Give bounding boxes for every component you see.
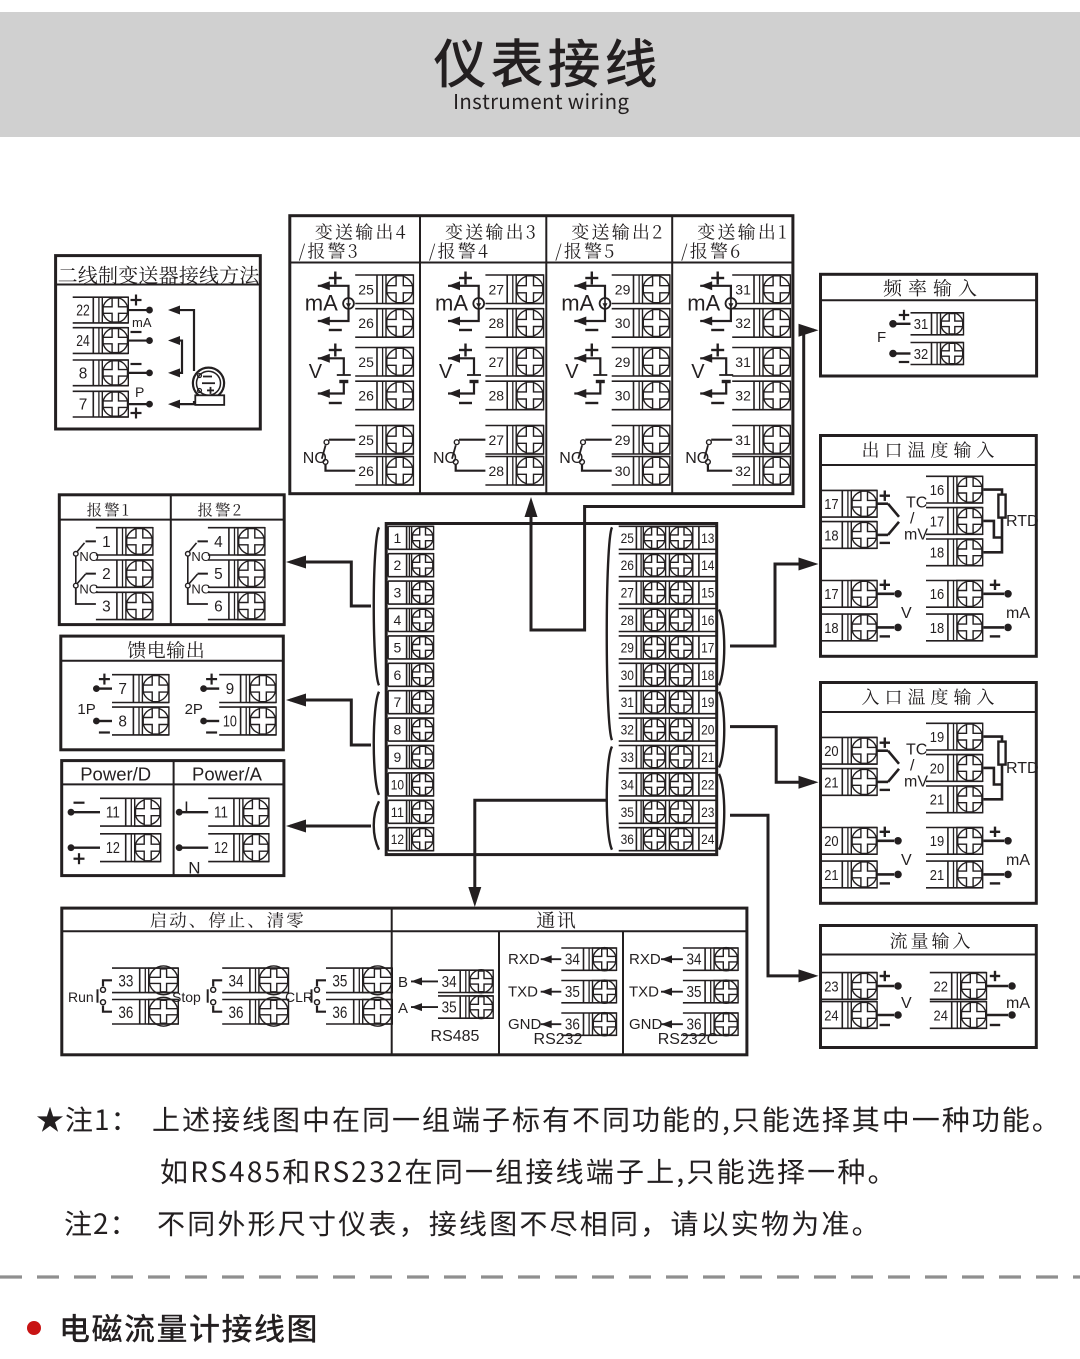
svg-text:33: 33 [118, 971, 133, 990]
svg-text:34: 34 [565, 952, 580, 969]
svg-text:1: 1 [102, 534, 111, 551]
svg-text:V: V [691, 361, 705, 383]
svg-text:24: 24 [934, 1008, 948, 1024]
svg-text:34: 34 [621, 776, 634, 792]
svg-text:N: N [188, 859, 200, 878]
svg-text:mA: mA [687, 291, 720, 316]
svg-text:mV: mV [904, 774, 928, 791]
svg-text:2P: 2P [185, 701, 203, 718]
svg-text:23: 23 [701, 804, 714, 820]
svg-text:32: 32 [735, 463, 751, 479]
svg-text:25: 25 [621, 530, 634, 546]
svg-text:30: 30 [621, 667, 634, 683]
svg-text:8: 8 [394, 722, 402, 738]
svg-text:5: 5 [394, 639, 402, 655]
svg-text:26: 26 [621, 557, 634, 573]
svg-text:16: 16 [701, 612, 714, 628]
svg-text:7: 7 [118, 681, 127, 698]
svg-text:V: V [901, 852, 912, 869]
svg-text:RTD: RTD [1006, 760, 1039, 777]
svg-text:Stop: Stop [172, 989, 201, 1005]
svg-text:TXD: TXD [508, 984, 538, 1001]
svg-text:Power/D: Power/D [80, 764, 151, 785]
svg-text:mA: mA [1006, 605, 1030, 622]
svg-text:25: 25 [358, 354, 374, 370]
svg-text:7: 7 [79, 397, 88, 414]
svg-text:1: 1 [394, 530, 402, 546]
svg-text:8: 8 [79, 365, 88, 382]
svg-text:28: 28 [489, 387, 505, 403]
svg-text:17: 17 [824, 497, 838, 513]
svg-text:27: 27 [489, 281, 505, 297]
svg-text:35: 35 [621, 804, 634, 820]
svg-text:6: 6 [214, 598, 223, 615]
svg-text:21: 21 [701, 749, 714, 765]
svg-text:2: 2 [102, 566, 111, 583]
svg-text:RS485: RS485 [431, 1028, 480, 1045]
svg-text:26: 26 [358, 387, 374, 403]
svg-text:26: 26 [358, 463, 374, 479]
svg-text:22: 22 [76, 303, 90, 320]
svg-text:mA: mA [305, 291, 338, 316]
svg-text:NO: NO [191, 549, 211, 564]
svg-text:32: 32 [735, 387, 751, 403]
svg-text:TXD: TXD [629, 984, 659, 1001]
svg-text:36: 36 [229, 1003, 244, 1022]
svg-text:NO: NO [433, 450, 457, 467]
svg-text:36: 36 [332, 1003, 347, 1022]
svg-text:V: V [309, 361, 323, 383]
svg-text:30: 30 [615, 315, 631, 331]
svg-text:34: 34 [229, 971, 244, 990]
svg-text:27: 27 [489, 432, 505, 448]
svg-text:31: 31 [914, 317, 928, 333]
svg-text:34: 34 [687, 952, 702, 969]
svg-text:26: 26 [358, 315, 374, 331]
svg-text:9: 9 [226, 681, 235, 698]
svg-text:8: 8 [118, 714, 127, 731]
svg-text:29: 29 [621, 639, 634, 655]
svg-text:21: 21 [930, 793, 944, 809]
svg-text:29: 29 [615, 354, 631, 370]
svg-text:23: 23 [824, 979, 838, 995]
svg-text:12: 12 [391, 831, 404, 847]
svg-text:1P: 1P [77, 701, 95, 718]
svg-text:22: 22 [934, 979, 948, 995]
svg-text:3: 3 [102, 598, 111, 615]
svg-text:12: 12 [214, 840, 228, 857]
svg-text:F: F [877, 329, 886, 346]
svg-text:11: 11 [214, 805, 228, 822]
svg-text:32: 32 [621, 722, 634, 738]
svg-text:24: 24 [701, 831, 714, 847]
svg-text:19: 19 [930, 834, 944, 850]
svg-text:11: 11 [106, 805, 120, 822]
svg-text:17: 17 [930, 514, 944, 530]
svg-text:17: 17 [824, 587, 838, 603]
svg-text:36: 36 [621, 831, 634, 847]
svg-text:mA: mA [561, 291, 594, 316]
svg-text:18: 18 [701, 667, 714, 683]
svg-text:RXD: RXD [629, 951, 661, 968]
svg-text:RS232: RS232 [534, 1031, 583, 1048]
svg-text:35: 35 [332, 971, 347, 990]
svg-text:10: 10 [223, 714, 237, 731]
svg-text:20: 20 [701, 722, 714, 738]
svg-text:18: 18 [824, 528, 838, 544]
svg-text:31: 31 [621, 694, 634, 710]
svg-text:24: 24 [824, 1008, 838, 1024]
svg-text:33: 33 [621, 749, 634, 765]
svg-text:A: A [398, 1000, 408, 1017]
svg-text:NO: NO [559, 450, 583, 467]
svg-text:31: 31 [735, 354, 751, 370]
svg-text:35: 35 [442, 1000, 457, 1017]
svg-text:32: 32 [914, 347, 928, 363]
svg-text:31: 31 [735, 281, 751, 297]
svg-text:31: 31 [735, 432, 751, 448]
svg-text:16: 16 [930, 587, 944, 603]
svg-text:28: 28 [489, 315, 505, 331]
svg-text:7: 7 [394, 694, 402, 710]
svg-text:20: 20 [930, 761, 944, 777]
svg-text:17: 17 [701, 639, 714, 655]
svg-text:4: 4 [214, 534, 223, 551]
svg-text:19: 19 [930, 730, 944, 746]
svg-text:24: 24 [76, 333, 90, 350]
svg-text:13: 13 [701, 530, 714, 546]
svg-text:29: 29 [615, 281, 631, 297]
svg-text:NC: NC [191, 582, 210, 597]
svg-text:15: 15 [701, 585, 714, 601]
svg-text:V: V [901, 995, 912, 1012]
svg-text:21: 21 [824, 775, 838, 791]
svg-text:21: 21 [930, 868, 944, 884]
svg-text:V: V [565, 361, 579, 383]
svg-text:32: 32 [735, 315, 751, 331]
svg-text:V: V [901, 605, 912, 622]
svg-text:14: 14 [701, 557, 714, 573]
svg-text:35: 35 [565, 984, 580, 1001]
svg-text:NO: NO [79, 549, 99, 564]
svg-text:28: 28 [621, 612, 634, 628]
svg-text:RS232C: RS232C [658, 1031, 718, 1048]
svg-text:29: 29 [615, 432, 631, 448]
svg-text:9: 9 [394, 749, 402, 765]
svg-text:Run: Run [68, 989, 94, 1005]
svg-text:34: 34 [442, 974, 457, 991]
svg-text:20: 20 [824, 834, 838, 850]
svg-text:Power/A: Power/A [192, 764, 263, 785]
svg-text:L: L [184, 798, 193, 817]
svg-text:20: 20 [824, 744, 838, 760]
svg-text:/: / [910, 511, 915, 528]
svg-text:TC: TC [906, 495, 927, 512]
svg-text:6: 6 [394, 667, 402, 683]
svg-text:18: 18 [824, 621, 838, 637]
svg-text:NO: NO [685, 450, 709, 467]
svg-text:mA: mA [435, 291, 468, 316]
svg-text:mA: mA [1006, 995, 1030, 1012]
svg-text:2: 2 [394, 557, 402, 573]
svg-text:22: 22 [701, 776, 714, 792]
svg-text:12: 12 [106, 840, 120, 857]
svg-text:27: 27 [489, 354, 505, 370]
svg-text:3: 3 [394, 585, 402, 601]
svg-text:RXD: RXD [508, 951, 540, 968]
svg-text:NC: NC [79, 582, 98, 597]
svg-text:10: 10 [391, 776, 404, 792]
svg-text:5: 5 [214, 566, 223, 583]
svg-text:30: 30 [615, 387, 631, 403]
svg-text:B: B [398, 974, 408, 991]
svg-text:V: V [439, 361, 453, 383]
svg-text:NO: NO [303, 450, 327, 467]
svg-text:mA: mA [132, 315, 152, 330]
svg-text:P: P [135, 384, 144, 400]
svg-text:16: 16 [930, 483, 944, 499]
svg-text:30: 30 [615, 463, 631, 479]
svg-text:19: 19 [701, 694, 714, 710]
svg-text:mA: mA [1006, 852, 1030, 869]
svg-text:25: 25 [358, 281, 374, 297]
svg-text:4: 4 [394, 612, 402, 628]
svg-text:35: 35 [687, 984, 702, 1001]
svg-text:RTD: RTD [1006, 513, 1039, 530]
svg-text:18: 18 [930, 621, 944, 637]
svg-text:/: / [910, 758, 915, 775]
svg-text:11: 11 [391, 804, 404, 820]
svg-text:CLR: CLR [285, 989, 313, 1005]
svg-text:28: 28 [489, 463, 505, 479]
svg-text:TC: TC [906, 742, 927, 759]
svg-text:25: 25 [358, 432, 374, 448]
svg-text:36: 36 [118, 1003, 133, 1022]
svg-text:18: 18 [930, 546, 944, 562]
svg-text:mV: mV [904, 527, 928, 544]
svg-text:21: 21 [824, 868, 838, 884]
svg-text:27: 27 [621, 585, 634, 601]
